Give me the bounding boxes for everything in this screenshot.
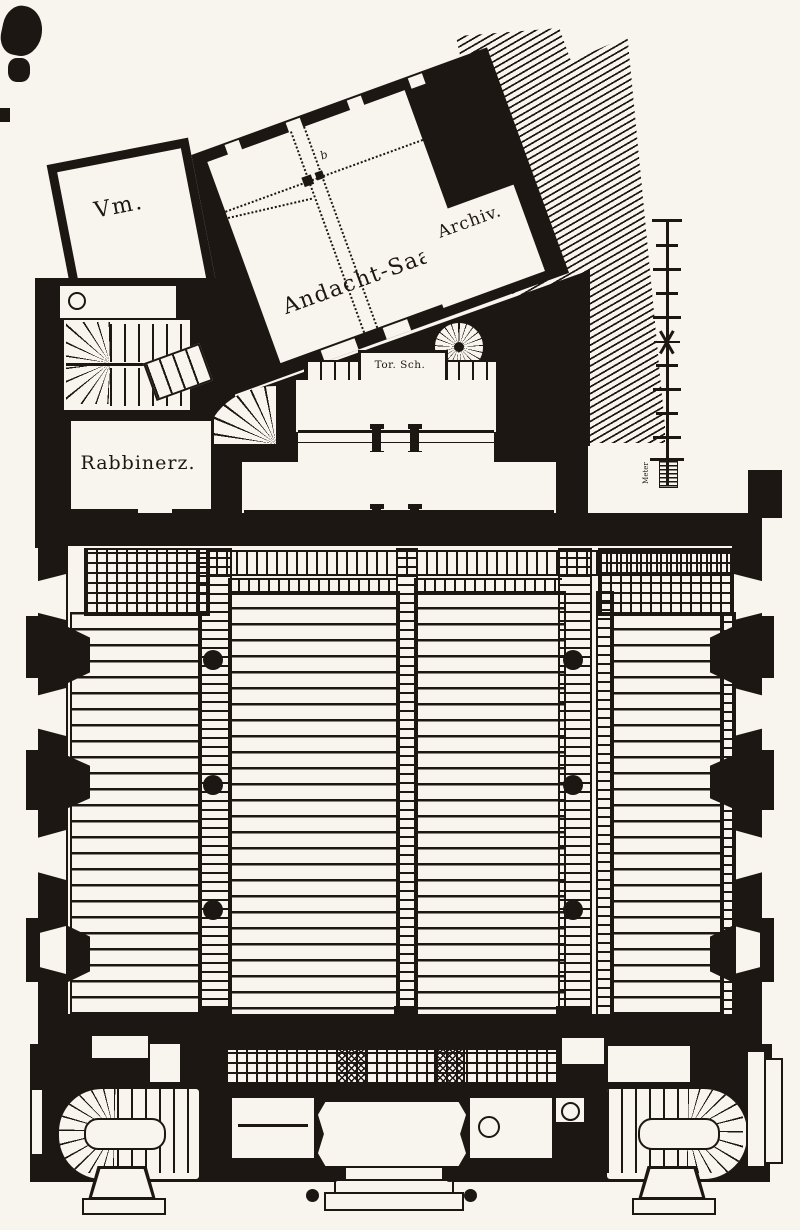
- fixture-circle: [561, 1102, 580, 1121]
- scale-tick: [653, 436, 681, 439]
- column-dot: [203, 775, 223, 795]
- central-aisle-strip: [396, 548, 418, 1026]
- buttress: [760, 918, 774, 982]
- side-porch-step: [764, 1058, 783, 1164]
- window: [37, 830, 66, 880]
- scale-tick: [652, 219, 682, 222]
- buttress: [760, 616, 774, 678]
- wall-pilaster: [32, 1090, 42, 1154]
- grid-letter: b: [314, 145, 334, 164]
- aisle-edge-strip: [720, 612, 736, 1020]
- entrance-vestibule: [318, 1102, 466, 1166]
- ink-stain: [0, 2, 47, 59]
- column-dot: [563, 650, 583, 670]
- wall-recess: [562, 1038, 604, 1064]
- column-dot: [342, 1028, 353, 1039]
- fixture-niche: [556, 1098, 584, 1122]
- column-dot: [203, 900, 223, 920]
- ceiling-dashed-line: [228, 198, 312, 219]
- bollard-dot: [444, 1170, 456, 1182]
- gate-post: [372, 426, 381, 454]
- courtyard-corner-wall: [748, 470, 782, 518]
- tile-floor: [84, 548, 210, 616]
- stair-exit-step: [632, 1198, 716, 1215]
- scale-tick: [656, 244, 678, 247]
- upper-platform: [296, 380, 496, 432]
- wall-opening: [408, 73, 426, 88]
- gate-post: [410, 426, 419, 454]
- window: [37, 926, 66, 974]
- fixture-circle: [478, 1116, 500, 1138]
- pew-block-left-aisle: [70, 612, 202, 1020]
- side-room: [232, 1098, 314, 1158]
- room-rabbinerz: Rabbinerz.: [68, 418, 214, 512]
- scale-tick: [656, 364, 678, 367]
- column-dot: [440, 1028, 451, 1039]
- tile-floor: [598, 548, 734, 616]
- buttress: [26, 918, 40, 982]
- window: [37, 574, 66, 620]
- window: [734, 830, 763, 880]
- scale-subdivision: [659, 460, 678, 488]
- lower-platform: [242, 462, 556, 514]
- scale-tick: [656, 412, 678, 415]
- pew-block-centre-right: [414, 591, 566, 1019]
- buttress: [760, 750, 774, 810]
- ink-stain: [8, 58, 30, 82]
- aisle-edge-strip: [596, 591, 614, 1019]
- stair-newel: [638, 1118, 720, 1150]
- pew-block-right-aisle: [610, 612, 724, 1020]
- west-wall-return: [30, 1044, 68, 1086]
- scale-tick: [653, 268, 681, 271]
- bollard-dot: [328, 1170, 340, 1182]
- column-dot: [203, 650, 223, 670]
- buttress: [26, 616, 40, 678]
- hall-north-wall: [38, 513, 760, 548]
- window: [734, 688, 763, 736]
- buttress: [26, 750, 40, 810]
- stair-exit: [92, 1169, 152, 1197]
- spiral-newel: [454, 342, 464, 352]
- room-step-line: [238, 1124, 308, 1127]
- scale-tick: [653, 388, 681, 391]
- ink-stain: [0, 108, 10, 122]
- scale-tick: [653, 316, 681, 319]
- wall-recess: [92, 1036, 148, 1058]
- bollard-dot: [464, 1189, 477, 1202]
- bollard-dot: [306, 1189, 319, 1202]
- window: [37, 688, 66, 736]
- ceiling-node: [301, 174, 314, 187]
- column-dot: [563, 900, 583, 920]
- stair-exit: [642, 1169, 702, 1197]
- scale-tick: [656, 292, 678, 295]
- pew-block-centre-left: [228, 591, 400, 1019]
- room-label-vm: Vm.: [63, 181, 175, 231]
- side-room: [470, 1098, 552, 1158]
- room-label-rabbinerz: Rabbinerz.: [71, 449, 205, 477]
- annex-corridor: [58, 284, 178, 320]
- window: [734, 574, 763, 620]
- floor-plan: b Andacht-Saal Archiv. Vm. Rabbinerz.: [0, 0, 800, 1230]
- window: [734, 926, 763, 974]
- side-porch-step: [746, 1050, 766, 1168]
- scale-star: [654, 329, 680, 355]
- column-dot: [563, 775, 583, 795]
- entrance-step: [324, 1192, 464, 1211]
- room-label-torah-shrine: Tor. Sch.: [361, 353, 439, 377]
- stair-newel: [84, 1118, 166, 1150]
- fixture-circle: [68, 292, 86, 310]
- stair-exit-step: [82, 1198, 166, 1215]
- scale-unit-label: Meter: [635, 463, 657, 483]
